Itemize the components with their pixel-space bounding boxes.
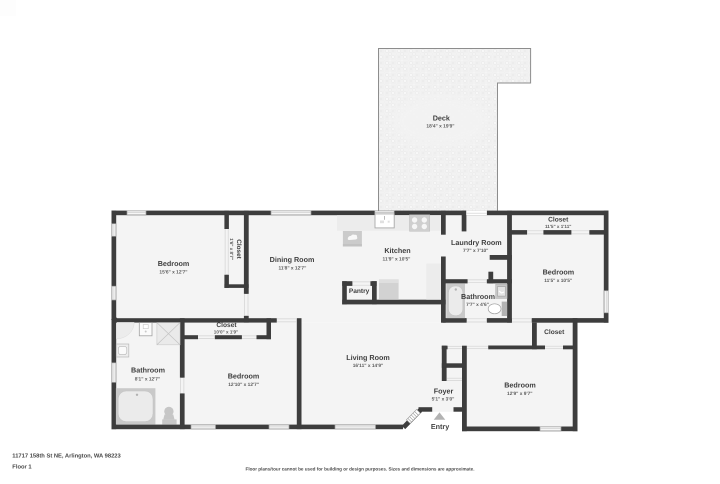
svg-text:5'1" x 3'0": 5'1" x 3'0" (432, 396, 455, 402)
svg-text:Kitchen: Kitchen (384, 246, 410, 255)
svg-text:12'9" x 9'7": 12'9" x 9'7" (507, 391, 533, 397)
svg-text:Closet: Closet (235, 239, 242, 259)
svg-text:16'11" x 14'9": 16'11" x 14'9" (353, 363, 384, 369)
svg-text:10'0" x 1'9": 10'0" x 1'9" (214, 330, 238, 335)
svg-text:Bedroom: Bedroom (543, 268, 575, 277)
svg-text:Floor 1: Floor 1 (12, 464, 32, 471)
svg-text:15'6" x 12'7": 15'6" x 12'7" (159, 270, 187, 276)
svg-text:11'5" x 10'5": 11'5" x 10'5" (544, 278, 572, 284)
svg-text:Closet: Closet (544, 329, 565, 336)
svg-text:Closet: Closet (548, 217, 569, 224)
svg-text:Pantry: Pantry (349, 288, 370, 295)
svg-text:11'5" x 1'11": 11'5" x 1'11" (545, 224, 571, 229)
svg-text:11717 158th St NE, Arlington,: 11717 158th St NE, Arlington, WA 98223 (12, 452, 121, 459)
svg-text:Bathroom: Bathroom (131, 366, 165, 375)
svg-text:11'9" x 10'5": 11'9" x 10'5" (383, 257, 411, 263)
svg-text:Bedroom: Bedroom (504, 381, 536, 390)
svg-text:7'7" x 4'6": 7'7" x 4'6" (466, 302, 489, 308)
svg-text:Entry: Entry (431, 422, 449, 431)
svg-text:Foyer: Foyer (434, 387, 454, 396)
svg-text:Bedroom: Bedroom (228, 372, 260, 381)
svg-text:Closet: Closet (216, 322, 237, 329)
svg-text:11'8" x 12'7": 11'8" x 12'7" (278, 266, 306, 272)
svg-text:Living Room: Living Room (346, 353, 390, 362)
svg-text:7'7" x 7'10": 7'7" x 7'10" (463, 248, 489, 254)
svg-text:Floor plans/tour cannot be use: Floor plans/tour cannot be used for buil… (246, 466, 475, 471)
svg-text:1'6" x 8'7": 1'6" x 8'7" (229, 238, 234, 260)
svg-text:Bedroom: Bedroom (158, 259, 190, 268)
svg-text:Bathroom: Bathroom (461, 292, 495, 301)
svg-text:18'4" x 19'9": 18'4" x 19'9" (426, 124, 454, 130)
svg-text:8'1" x 12'7": 8'1" x 12'7" (135, 377, 161, 383)
svg-text:Dining Room: Dining Room (270, 255, 315, 264)
svg-text:Deck: Deck (433, 114, 450, 123)
svg-text:Laundry Room: Laundry Room (451, 238, 502, 247)
svg-text:12'10" x 12'7": 12'10" x 12'7" (228, 382, 259, 388)
